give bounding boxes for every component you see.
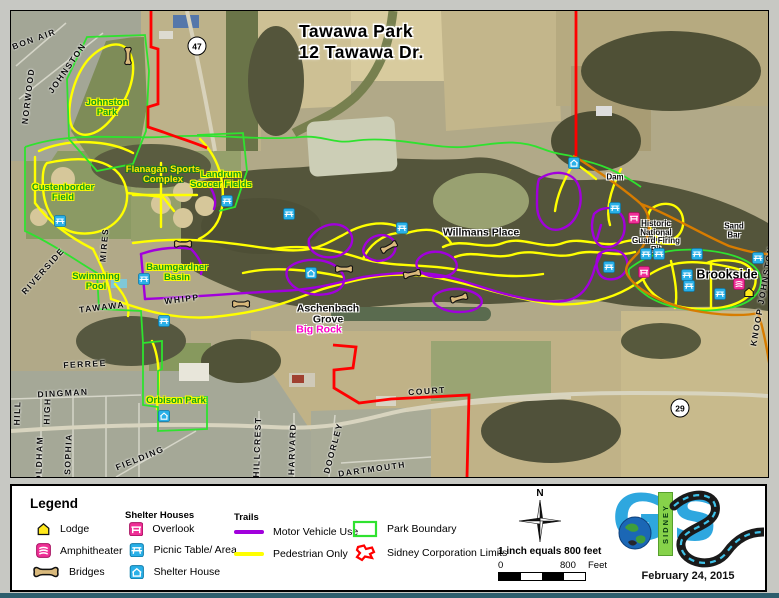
picnic-icon — [609, 202, 622, 214]
street-label-high: HIGH — [42, 397, 53, 425]
park-label-flanagan-sports-complex: Flanagan Sports Complex — [126, 165, 200, 186]
shelter-icon — [568, 157, 581, 169]
motor-trail-swatch — [234, 530, 264, 534]
compass-star-icon — [518, 499, 562, 543]
picnic-icon — [283, 208, 296, 220]
sidney-gis-logo: G SIDNEY S February 24, 2015 — [612, 488, 764, 586]
scale-unit-label: Feet — [588, 560, 607, 571]
legend-item-sidney-corporation-limits: Sidney Corporation Limits — [352, 543, 507, 563]
park-map: Tawawa Park12 Tawawa Dr. Johnston ParkCu… — [10, 10, 769, 478]
shelter-icon — [158, 410, 171, 422]
picnic-icon — [396, 222, 409, 234]
picnic-icon — [691, 248, 704, 260]
park-label-landrum-soccer-fields: Landrum Soccer Fields — [190, 170, 252, 191]
legend-item-park-boundary: Park Boundary — [352, 520, 456, 538]
picnic-icon — [603, 261, 616, 273]
route-shield-29: 29 — [671, 399, 690, 418]
park-label-brookside: Brookside — [696, 268, 757, 282]
scale-block: 1 inch equals 800 feet 0 800 Feet — [498, 546, 608, 581]
lodge-icon — [36, 522, 51, 536]
amphitheater-icon — [36, 543, 51, 558]
sidney-limits-swatch — [352, 543, 378, 563]
picnic-icon — [138, 273, 151, 285]
picnic-icon — [640, 248, 653, 260]
park-label-sand-bar: Sand Bar — [724, 222, 744, 239]
overlook-icon — [129, 522, 143, 536]
legend-item-pedestrian-only: Pedestrian Only — [234, 548, 348, 560]
route-shield-47: 47 — [188, 37, 207, 56]
picnic-icon — [714, 288, 727, 300]
legend-item-label: Picnic Table/ Area — [154, 544, 237, 556]
park-label-willmans-place: Willmans Place — [443, 227, 519, 238]
scale-end-label: 800 — [560, 560, 576, 571]
overlook-icon — [628, 212, 640, 224]
overlook-icon — [638, 266, 650, 278]
lodge-icon — [743, 287, 755, 298]
legend-header-shelter-houses: Shelter Houses — [125, 510, 194, 521]
bridge-icon — [231, 299, 251, 309]
scale-ratio-text: 1 inch equals 800 feet — [498, 546, 608, 557]
legend-item-label: Amphitheater — [60, 545, 122, 557]
legend-item-label: Park Boundary — [387, 523, 456, 535]
shelter-icon — [305, 267, 318, 279]
map-title-line1: Tawawa Park — [299, 21, 413, 41]
park-boundary-swatch — [352, 520, 378, 538]
shelter-house-icon — [129, 565, 145, 579]
street-label-oldham: OLDHAM — [33, 436, 45, 478]
legend-header-trails: Trails — [234, 512, 259, 523]
legend-item-label: Overlook — [152, 523, 194, 535]
bridge-icon — [334, 264, 354, 274]
bridge-icon — [32, 565, 60, 579]
legend-item-label: Sidney Corporation Limits — [387, 547, 507, 559]
bridge-icon — [173, 239, 193, 249]
logo-road-swirl — [664, 488, 764, 570]
picnic-icon — [653, 248, 666, 260]
legend-item-motor-vehicle-use: Motor Vehicle Use — [234, 526, 358, 538]
legend-item-label: Shelter House — [154, 566, 221, 578]
legend-item-lodge: Lodge — [36, 522, 89, 536]
map-title: Tawawa Park12 Tawawa Dr. — [299, 21, 424, 62]
legend-item-bridges: Bridges — [32, 565, 105, 579]
picnic-icon — [54, 215, 67, 227]
legend-item-amphitheater: Amphitheater — [36, 543, 122, 558]
picnic-table-icon — [129, 543, 145, 557]
street-label-sophia: SOPHIA — [62, 433, 73, 475]
legend-item-shelter-house: Shelter House — [129, 565, 220, 579]
legend-item-picnic-table: Picnic Table/ Area — [129, 543, 237, 557]
picnic-icon — [683, 280, 696, 292]
scale-start-label: 0 — [498, 560, 503, 571]
picnic-icon — [158, 315, 171, 327]
compass-north-label: N — [517, 488, 563, 499]
scale-bar — [498, 572, 586, 581]
legend-item-overlook: Overlook — [129, 522, 194, 536]
picnic-icon — [752, 252, 765, 264]
logo-date: February 24, 2015 — [618, 570, 758, 582]
legend-item-label: Motor Vehicle Use — [273, 526, 358, 538]
street-label-hillcrest: HILLCREST — [251, 416, 263, 478]
street-label-harvard: HARVARD — [286, 423, 298, 476]
legend-item-label: Pedestrian Only — [273, 548, 348, 560]
pedestrian-trail-swatch — [234, 552, 264, 556]
globe-icon — [618, 516, 652, 555]
park-label-big-rock: Big Rock — [296, 324, 342, 335]
legend-item-label: Lodge — [60, 523, 89, 535]
bridge-icon — [123, 46, 133, 66]
bottom-edge-strip — [0, 593, 779, 598]
park-label-custenborder-field: Custenborder Field — [32, 183, 94, 204]
park-label-swimming-pool: Swimming Pool — [72, 272, 120, 293]
park-label-baumgardner-basin: Baumgardner Basin — [146, 263, 208, 284]
legend-panel: Legend Lodge Amphitheater Bridges Shelte… — [10, 484, 767, 592]
park-label-johnston-park: Johnston Park — [86, 98, 129, 119]
map-title-line2: 12 Tawawa Dr. — [299, 42, 424, 62]
compass-rose: N — [517, 488, 563, 548]
park-label-dam: Dam — [606, 174, 623, 183]
park-label-orbison-park: Orbison Park — [146, 396, 206, 406]
map-sheet: Tawawa Park12 Tawawa Dr. Johnston ParkCu… — [0, 0, 779, 598]
street-label-hill: HILL — [12, 400, 23, 425]
legend-item-label: Bridges — [69, 566, 105, 578]
legend-title: Legend — [30, 496, 78, 511]
picnic-icon — [221, 195, 234, 207]
